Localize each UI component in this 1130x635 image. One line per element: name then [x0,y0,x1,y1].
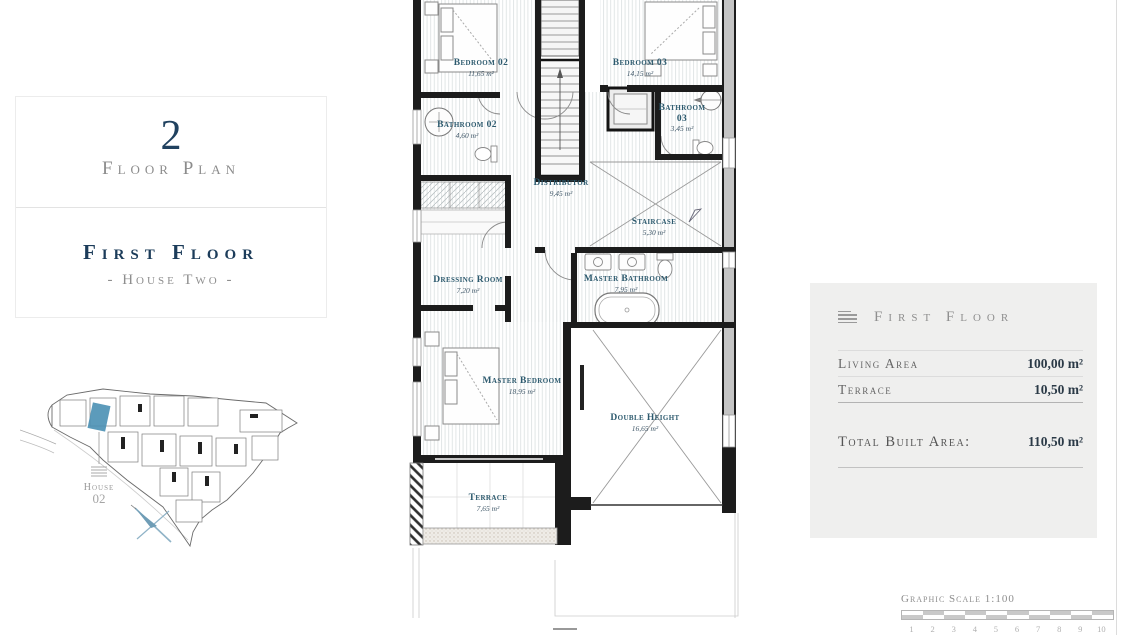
shower-enclosure [608,88,653,130]
road-line [20,440,54,453]
floor-plan-drawing [405,0,750,635]
toilet-bathroom-03 [693,140,713,156]
plan-number: 2 [16,114,326,158]
terrace-label: Terrace [838,382,892,398]
staircase-lower-flight [539,60,581,176]
floor-plan-page: 2 Floor Plan First Floor - House Two - [0,0,1130,635]
scale-tick-numbers: 12345678910 [901,624,1113,634]
map-house-number: 02 [93,491,106,506]
total-built-area-value: 110,50 m² [1028,434,1083,450]
floor-title: First Floor [16,240,326,265]
living-area-label: Living Area [838,356,919,372]
staircase-upper-flight [541,0,579,56]
area-summary-panel: First Floor Living Area 100,00 m² Terrac… [810,283,1097,538]
scale-bar [901,610,1114,620]
total-built-area-label: Total Built Area: [838,434,971,451]
bathtub [595,293,659,327]
graphic-scale: Graphic Scale 1:100 12345678910 [901,593,1113,634]
terrace [410,463,557,545]
datum-mark [553,628,577,630]
page-divider-line [1116,0,1117,635]
panel-header: First Floor [838,309,1083,326]
total-rule [838,467,1083,468]
double-height-cross [593,330,721,503]
terrace-row: Terrace 10,50 m² [838,377,1083,403]
terrace-value: 10,50 m² [1034,382,1083,398]
total-built-area-row: Total Built Area: 110,50 m² [838,427,1083,457]
graphic-scale-label: Graphic Scale 1:100 [901,593,1113,605]
plan-title-section: First Floor - House Two - [16,208,326,289]
living-area-value: 100,00 m² [1027,356,1083,372]
shower-bathroom-02 [425,108,453,136]
plan-header-panel: 2 Floor Plan First Floor - House Two - [15,96,327,318]
site-location-map: House 02 [20,380,320,558]
toilet-master-bath [657,253,673,278]
gravel-band [423,528,557,544]
house-subtitle: - House Two - [16,272,326,289]
scale-bar-bottom-row [902,615,1113,619]
site-boundary-curve [48,405,52,427]
planter-hatch-band [410,463,423,545]
list-icon [838,311,857,325]
panel-title: First Floor [874,309,1014,326]
balustrade [580,365,584,410]
list-icon-small [91,467,107,476]
plan-caption: Floor Plan [16,158,326,180]
living-area-row: Living Area 100,00 m² [838,350,1083,377]
plan-number-section: 2 Floor Plan [16,97,326,208]
toilet-bathroom-02 [475,146,497,162]
wardrobe [421,182,509,234]
